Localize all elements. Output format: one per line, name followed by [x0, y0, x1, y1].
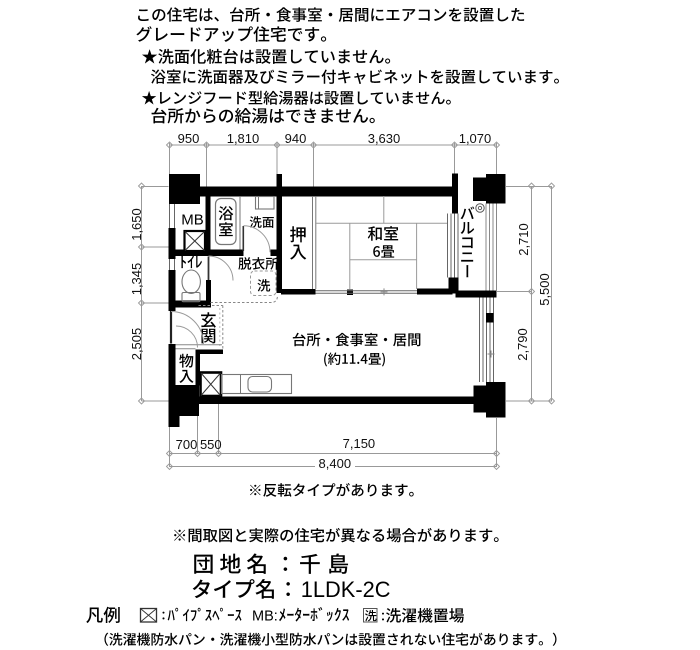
svg-text:5,500: 5,500: [537, 273, 552, 306]
svg-text:700: 700: [176, 437, 198, 452]
svg-text:2,505: 2,505: [129, 328, 144, 361]
svg-text:1,070: 1,070: [459, 131, 492, 146]
svg-text:550: 550: [200, 437, 222, 452]
svg-text:2,710: 2,710: [516, 223, 531, 256]
svg-text:3,630: 3,630: [368, 131, 401, 146]
svg-text:940: 940: [285, 131, 307, 146]
svg-text:MB: MB: [181, 212, 204, 229]
svg-text:950: 950: [178, 131, 200, 146]
svg-text:MB:: MB:: [252, 609, 278, 625]
svg-text:1,650: 1,650: [129, 208, 144, 241]
svg-text:1,810: 1,810: [227, 131, 260, 146]
svg-text:7,150: 7,150: [343, 436, 376, 451]
svg-text:8,400: 8,400: [319, 456, 352, 471]
svg-text:1LDK-2C: 1LDK-2C: [301, 577, 391, 602]
svg-text:2,790: 2,790: [515, 328, 530, 361]
svg-text:1,345: 1,345: [129, 263, 144, 296]
